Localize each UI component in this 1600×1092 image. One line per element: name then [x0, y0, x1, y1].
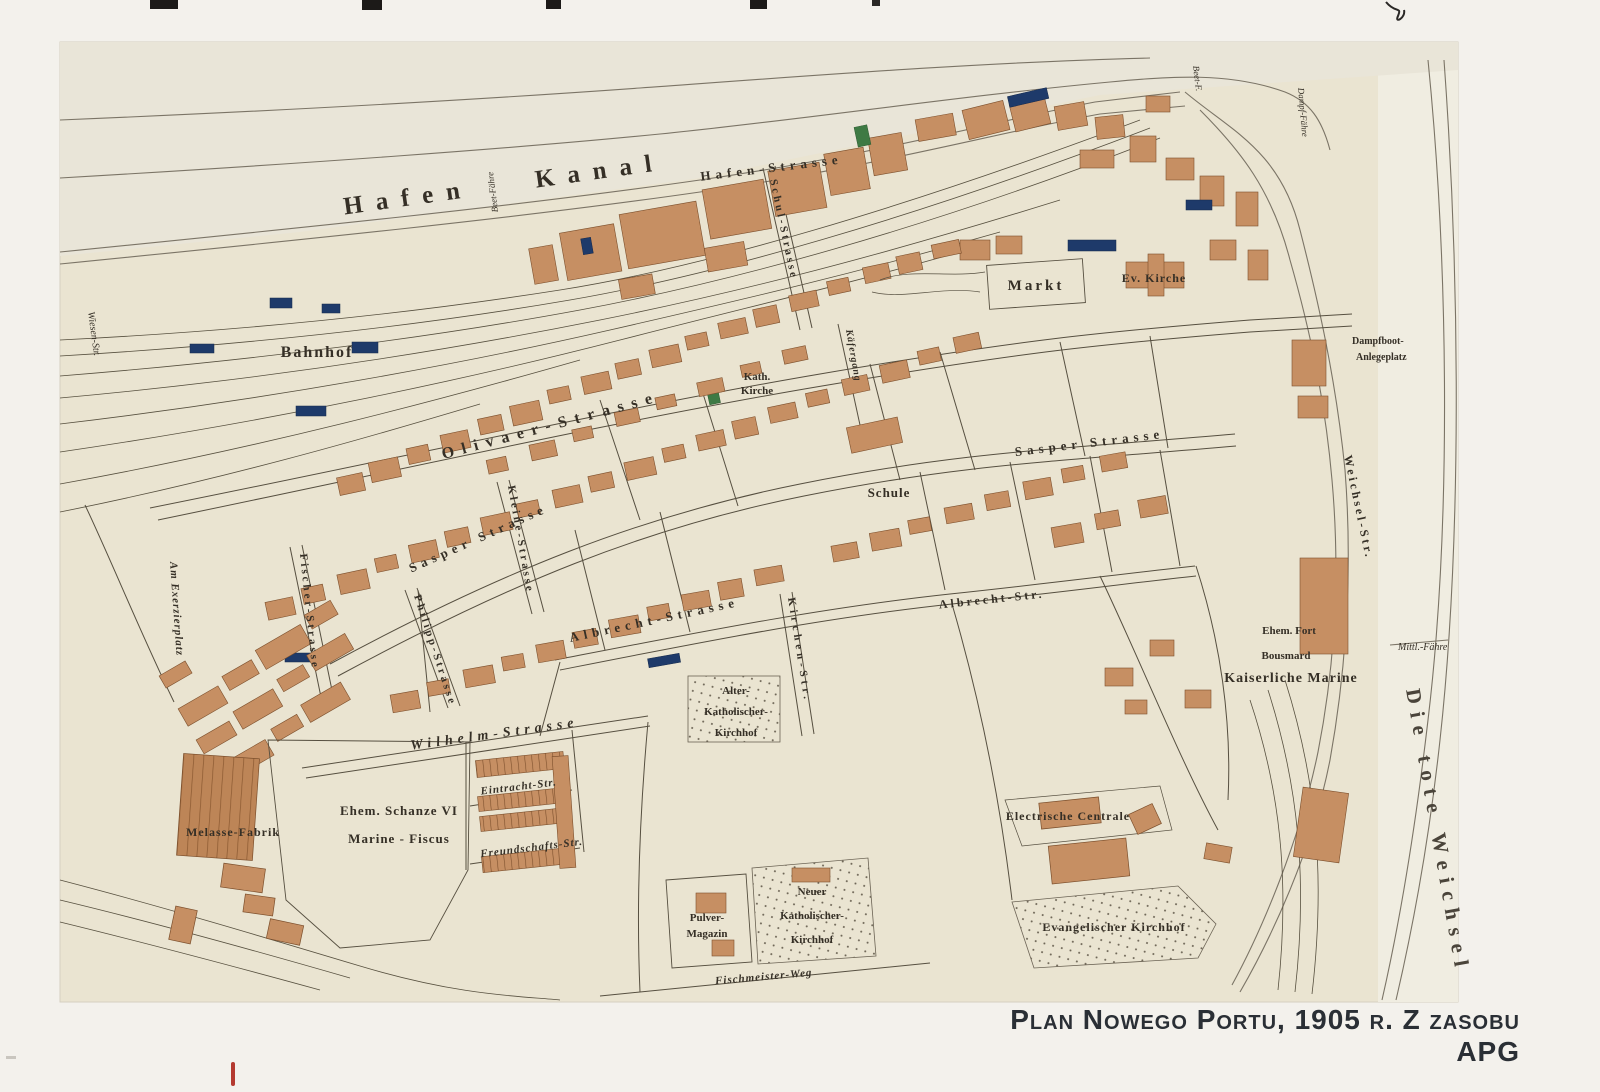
- label-ev-kirche: Ev. Kirche: [1122, 271, 1186, 285]
- label-neuer-kath-3: Kirchhof: [791, 934, 834, 946]
- label-pulver-1: Pulver-: [690, 912, 725, 924]
- label-neuer-kath-1: Neuer: [798, 886, 827, 898]
- label-kaiserliche-marine: Kaiserliche Marine: [1224, 671, 1357, 686]
- label-ehem-fort-1: Ehem. Fort: [1262, 625, 1316, 637]
- scanned-map-photo: Hafen Kanal Beet-Fähre Beet-F. Dampf-Fäh…: [0, 0, 1600, 1092]
- label-dampfboot-1: Dampfboot-: [1352, 336, 1404, 347]
- label-alter-kath-1: Alter-: [722, 685, 750, 697]
- label-electrische-centrale: Electrische Centrale: [1006, 809, 1130, 823]
- label-bahnhof: Bahnhof: [281, 344, 354, 361]
- photo-caption: Plan Nowego Portu, 1905 r. Z zasobu APG: [960, 1004, 1520, 1068]
- label-marine-fiscus: Marine - Fiscus: [348, 831, 450, 846]
- label-ehem-fort-2: Bousmard: [1262, 650, 1311, 662]
- label-alter-kath-2: Katholischer-: [704, 706, 768, 718]
- label-schule: Schule: [868, 485, 911, 500]
- label-kath-kirche-2: Kirche: [741, 385, 773, 397]
- map-plate: Hafen Kanal Beet-Fähre Beet-F. Dampf-Fäh…: [0, 0, 1600, 1092]
- label-ehem-schanze: Ehem. Schanze VI: [340, 803, 458, 818]
- label-neuer-kath-2: Katholischer-: [780, 910, 844, 922]
- label-markt: Markt: [1008, 278, 1065, 294]
- label-melasse-fabrik: Melasse-Fabrik: [186, 825, 280, 839]
- label-kath-kirche-1: Kath.: [744, 371, 771, 383]
- label-dampfboot-2: Anlegeplatz: [1356, 352, 1407, 363]
- label-evangelischer-kirchhof: Evangelischer Kirchhof: [1042, 920, 1185, 934]
- label-pulver-2: Magazin: [687, 928, 728, 940]
- label-mittl-faehre: Mittl.-Fähre: [1397, 642, 1448, 653]
- label-alter-kath-3: Kirchhof: [715, 727, 758, 739]
